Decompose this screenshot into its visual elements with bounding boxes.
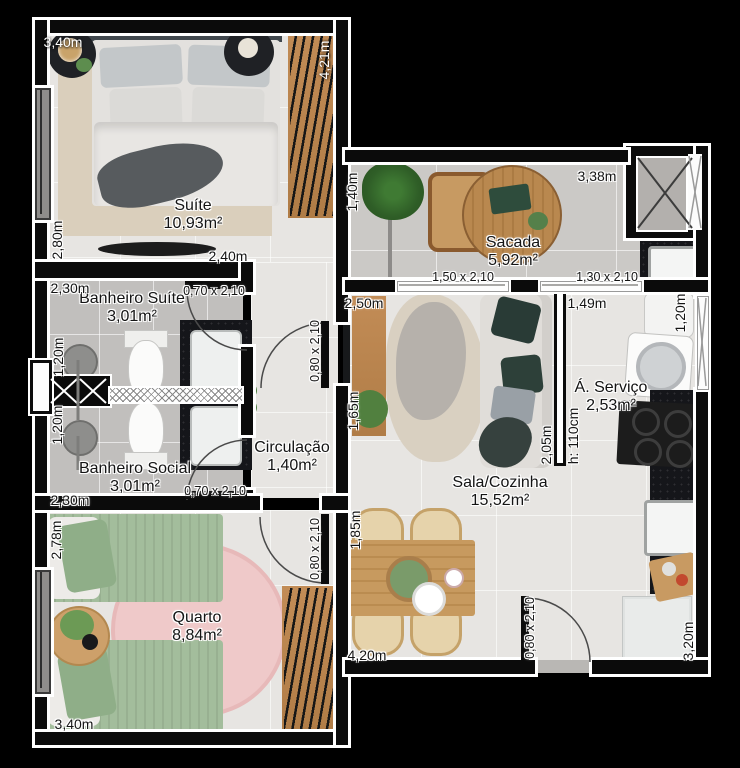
dim-quarto-door: 0,80 x 2,10 bbox=[308, 518, 322, 580]
room-area: 3,01m² bbox=[79, 478, 191, 496]
dim-banheiro-suite-left: 1,20m bbox=[50, 338, 66, 377]
room-area: 1,40m² bbox=[254, 457, 330, 475]
room-area: 2,53m² bbox=[575, 397, 648, 415]
dim-banheiro-social-door: 0,70 x 2,10 bbox=[184, 484, 246, 498]
dim-kitchen-right: 3,20m bbox=[680, 622, 696, 661]
room-name: Á. Serviço bbox=[575, 379, 648, 397]
dim-banheiro-suite-top: 2,30m bbox=[51, 280, 90, 296]
dim-circ-sala-door: 0,80 x 2,10 bbox=[308, 320, 322, 382]
room-area: 3,01m² bbox=[79, 308, 185, 326]
dim-sala-top-left: 2,50m bbox=[345, 295, 384, 311]
room-name: Suíte bbox=[164, 197, 223, 215]
room-label-suite: Suíte10,93m² bbox=[164, 197, 223, 233]
dim-banheiro-suite-door: 0,70 x 2,10 bbox=[183, 284, 245, 298]
dim-suite-left: 2,80m bbox=[49, 221, 65, 260]
dim-sala-left-upper: 1,65m bbox=[345, 392, 361, 431]
dim-sacada-window-1: 1,50 x 2,10 bbox=[432, 270, 494, 284]
room-area: 15,52m² bbox=[452, 492, 547, 510]
dim-suite-depth-right: 4,21m bbox=[316, 41, 332, 80]
labels-layer: Suíte10,93m²Banheiro Suíte3,01m²Banheiro… bbox=[0, 0, 740, 768]
dim-sofa-wall: 2,05m bbox=[538, 426, 554, 465]
dim-suite-width-top: 3,40m bbox=[44, 34, 83, 50]
dim-sala-left-lower: 1,85m bbox=[347, 511, 363, 550]
room-label-banheiro-suite: Banheiro Suíte3,01m² bbox=[79, 290, 185, 326]
room-name: Sala/Cozinha bbox=[452, 474, 547, 492]
room-label-circulacao: Circulação1,40m² bbox=[254, 439, 330, 475]
room-label-banheiro-social: Banheiro Social3,01m² bbox=[79, 460, 191, 496]
room-label-quarto: Quarto8,84m² bbox=[172, 609, 222, 645]
floor-plan: Suíte10,93m²Banheiro Suíte3,01m²Banheiro… bbox=[0, 0, 740, 768]
dim-banheiro-social-left: 1,20m bbox=[49, 406, 65, 445]
dim-servico-right: 1,20m bbox=[672, 294, 688, 333]
dim-sala-bottom: 4,20m bbox=[348, 647, 387, 663]
room-name: Banheiro Suíte bbox=[79, 290, 185, 308]
dim-half-wall-height: h: 110cm bbox=[565, 408, 581, 465]
room-area: 5,92m² bbox=[486, 252, 540, 270]
dim-quarto-bottom: 3,40m bbox=[55, 716, 94, 732]
room-label-a-servico: Á. Serviço2,53m² bbox=[575, 379, 648, 415]
room-name: Circulação bbox=[254, 439, 330, 457]
room-label-sala-cozinha: Sala/Cozinha15,52m² bbox=[452, 474, 547, 510]
dim-sala-top-right: 1,49m bbox=[568, 295, 607, 311]
dim-banheiro-social-bottom: 2,30m bbox=[51, 492, 90, 508]
room-area: 8,84m² bbox=[172, 627, 222, 645]
room-name: Sacada bbox=[486, 234, 540, 252]
room-name: Quarto bbox=[172, 609, 222, 627]
room-label-sacada: Sacada5,92m² bbox=[486, 234, 540, 270]
dim-quarto-left: 2,78m bbox=[48, 521, 64, 560]
room-name: Banheiro Social bbox=[79, 460, 191, 478]
dim-sacada-top: 3,38m bbox=[578, 168, 617, 184]
room-area: 10,93m² bbox=[164, 215, 223, 233]
dim-suite-bottom: 2,40m bbox=[209, 248, 248, 264]
dim-sacada-window-2: 1,30 x 2,10 bbox=[576, 270, 638, 284]
dim-sacada-left: 1,40m bbox=[344, 173, 360, 212]
dim-entry-door: 0,80 x 2,10 bbox=[523, 597, 537, 659]
